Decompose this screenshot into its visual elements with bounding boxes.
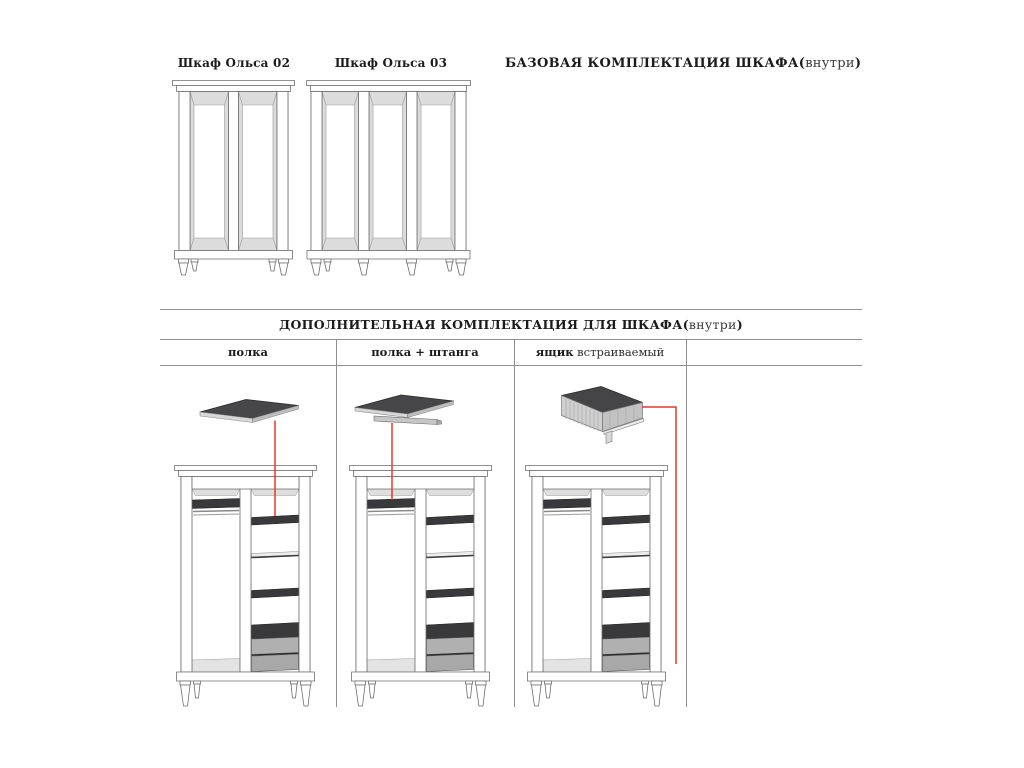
additional-config-title-bold: ДОПОЛНИТЕЛЬНАЯ КОМПЛЕКТАЦИЯ ДЛЯ ШКАФА( — [279, 317, 689, 332]
additional-config-title: ДОПОЛНИТЕЛЬНАЯ КОМПЛЕКТАЦИЯ ДЛЯ ШКАФА(вн… — [160, 310, 862, 339]
fitted-wardrobe-shelf-rod-drawing — [350, 466, 492, 707]
basic-config-title-light: внутри — [805, 56, 855, 71]
column-header-drawer: ящик встраиваемый — [514, 339, 686, 365]
column-header-shelf: полка — [160, 339, 336, 365]
column-divider-3 — [686, 339, 687, 707]
fitted-wardrobe-drawer-drawing — [526, 466, 668, 707]
table-rule-header-bottom — [160, 365, 862, 366]
basic-config-title-bold: БАЗОВАЯ КОМПЛЕКТАЦИЯ ШКАФА( — [505, 56, 805, 71]
column-header-drawer-bold: ящик — [536, 345, 574, 359]
column-header-shelf-bold: полка — [228, 345, 268, 359]
column-header-empty — [686, 339, 862, 365]
additional-config-title-close: ) — [737, 317, 743, 332]
basic-config-title-close: ) — [855, 56, 861, 71]
shelf-rod-part-drawing — [355, 395, 454, 425]
column-header-drawer-light: встраиваемый — [574, 345, 665, 359]
column-divider-2 — [514, 339, 515, 707]
column-header-shelf-rod-bold: полка + штанга — [371, 345, 478, 359]
furniture-diagram-page: Шкаф Ольса 02 Шкаф Ольса 03 БАЗОВАЯ КОМП… — [0, 0, 1024, 768]
column-divider-1 — [336, 339, 337, 707]
wardrobe-olsa-02-label: Шкаф Ольса 02 — [164, 56, 304, 70]
fitted-wardrobe-shelf-drawing — [175, 466, 317, 707]
wardrobe-olsa-02-drawing — [173, 81, 295, 276]
drawer-part-drawing — [562, 387, 644, 444]
additional-config-title-light: внутри — [689, 317, 737, 332]
column-header-shelf-rod: полка + штанга — [336, 339, 514, 365]
wardrobe-olsa-03-label: Шкаф Ольса 03 — [318, 56, 464, 70]
furniture-diagram-canvas — [0, 0, 1024, 768]
basic-config-title: БАЗОВАЯ КОМПЛЕКТАЦИЯ ШКАФА(внутри) — [505, 56, 861, 71]
wardrobe-olsa-03-drawing — [307, 81, 471, 276]
shelf-part-drawing — [200, 400, 299, 423]
